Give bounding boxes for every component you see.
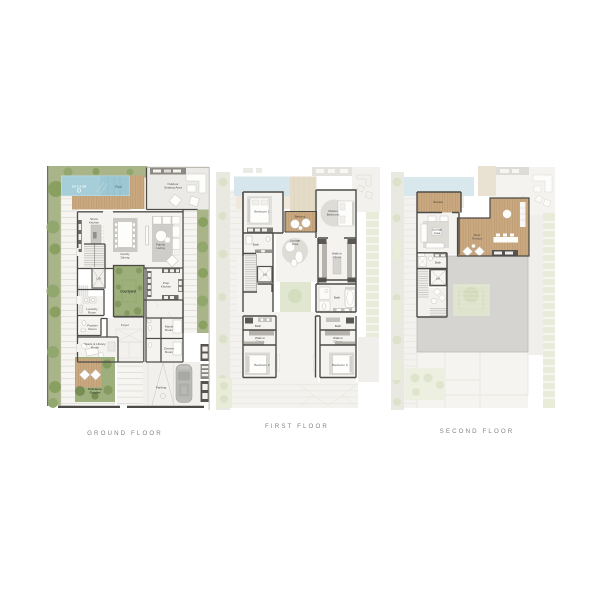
svg-text:Room: Room <box>88 327 97 331</box>
svg-text:Kitchen: Kitchen <box>89 221 100 225</box>
svg-text:Bedroom: Bedroom <box>327 213 340 217</box>
svg-text:Bedroom 1: Bedroom 1 <box>254 210 269 214</box>
svg-text:Bedroom 2: Bedroom 2 <box>254 363 269 367</box>
svg-text:Garden: Garden <box>90 391 101 395</box>
svg-text:Room: Room <box>165 328 174 332</box>
svg-text:SECOND FLOOR: SECOND FLOOR <box>440 428 515 435</box>
svg-text:Room: Room <box>91 346 100 350</box>
svg-text:Terrace: Terrace <box>472 237 483 241</box>
svg-text:Bath: Bath <box>435 261 442 265</box>
svg-text:8.8 X 2.5M: 8.8 X 2.5M <box>72 185 87 189</box>
svg-text:Bedroom 3: Bedroom 3 <box>332 363 347 367</box>
svg-text:Room: Room <box>165 350 174 354</box>
svg-text:Lift: Lift <box>263 273 267 277</box>
svg-text:Parking: Parking <box>156 386 167 390</box>
svg-text:Foyer: Foyer <box>121 323 129 327</box>
svg-text:Dining: Dining <box>121 256 130 260</box>
svg-text:Closet: Closet <box>333 255 342 259</box>
svg-text:Pool: Pool <box>115 185 122 189</box>
svg-text:GROUND FLOOR: GROUND FLOOR <box>87 430 163 437</box>
svg-text:Area: Area <box>434 231 441 235</box>
svg-text:Bath: Bath <box>255 324 262 328</box>
svg-text:Bath: Bath <box>335 324 342 328</box>
svg-text:Lift: Lift <box>436 277 440 281</box>
svg-text:Lift: Lift <box>96 277 100 281</box>
svg-text:Area: Area <box>292 242 299 246</box>
svg-text:FIRST FLOOR: FIRST FLOOR <box>265 423 329 430</box>
svg-text:Room: Room <box>88 311 97 315</box>
svg-text:Living: Living <box>156 246 164 250</box>
svg-text:Terrace: Terrace <box>433 200 443 204</box>
svg-text:Seating Area: Seating Area <box>164 186 182 190</box>
svg-text:Kitchen: Kitchen <box>161 285 172 289</box>
svg-text:Courtyard: Courtyard <box>120 290 136 294</box>
svg-text:Bath: Bath <box>253 243 260 247</box>
svg-text:Bath: Bath <box>334 296 341 300</box>
svg-text:Balcony: Balcony <box>295 215 306 219</box>
